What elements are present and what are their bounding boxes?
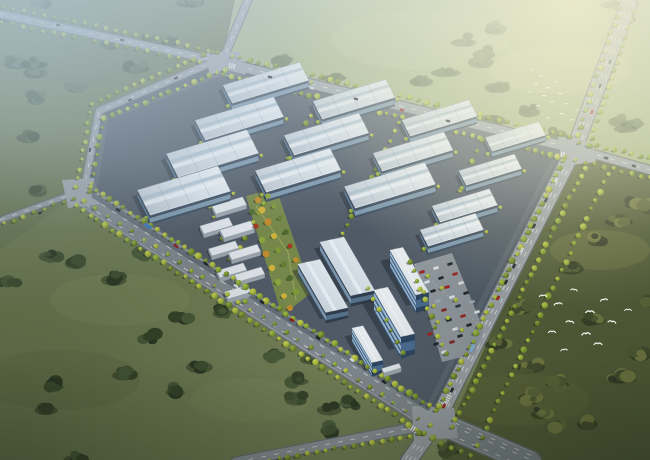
industrial-park-aerial-render bbox=[0, 0, 650, 460]
atmosphere-overlay bbox=[0, 0, 650, 460]
render-canvas bbox=[0, 0, 650, 460]
